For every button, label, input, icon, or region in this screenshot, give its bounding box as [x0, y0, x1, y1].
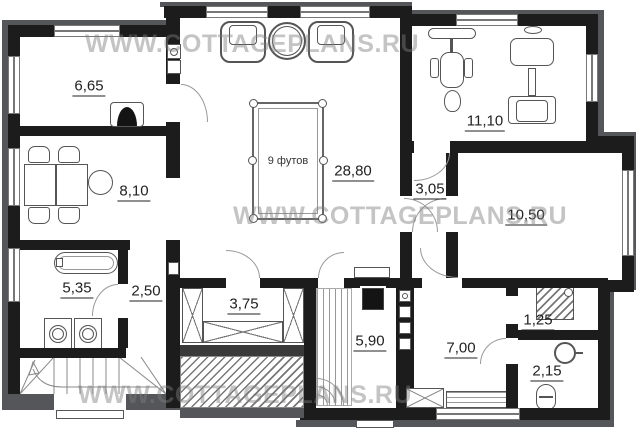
exercise-bike-stem [450, 39, 453, 52]
window [436, 408, 520, 420]
room-label-shower: 1,25 [521, 312, 554, 329]
exercise-bike-seat [440, 52, 464, 88]
exterior-wall [164, 6, 412, 18]
interior-wall [118, 240, 128, 284]
window [8, 148, 20, 206]
toilet-tank-line [539, 396, 553, 398]
room-label-billiard-hall: 28,80 [332, 163, 374, 180]
room-label-bathroom: 5,35 [60, 280, 93, 297]
window [206, 6, 268, 18]
window [456, 14, 518, 26]
interior-wall [180, 345, 304, 356]
door-arc [226, 250, 260, 278]
room-label-hallway: 2,50 [129, 283, 162, 300]
billiard-pocket [248, 156, 257, 165]
washing-machine-door [79, 325, 97, 343]
watermark: WWW.COTTAGEPLANS.RU [233, 202, 567, 231]
door-arc [181, 84, 208, 122]
shower-drain [564, 288, 573, 297]
window [622, 170, 634, 256]
chair [88, 170, 113, 195]
watermark: WWW.COTTAGEPLANS.RU [78, 381, 412, 410]
sauna-stove [360, 286, 386, 312]
interior-wall [8, 348, 126, 358]
electric-panel [168, 262, 179, 275]
weight-machine-cap [524, 26, 542, 34]
door-arc [420, 248, 458, 278]
window [8, 56, 20, 114]
door-arc [318, 252, 344, 278]
washing-machine-door [49, 325, 67, 343]
interior-wall [400, 232, 412, 278]
door-arc [92, 284, 118, 316]
chair [28, 207, 50, 224]
billiard-pocket [319, 156, 328, 165]
billiard-table-size-label: 9 футов [268, 155, 308, 167]
chair [58, 146, 80, 163]
room-label-gym: 11,10 [465, 113, 505, 130]
weight-machine-column [528, 68, 536, 96]
weight-machine-pad [510, 38, 554, 66]
interior-wall [118, 318, 128, 348]
chimney-footing [356, 420, 394, 428]
window [300, 6, 370, 18]
exterior-wall [598, 280, 610, 420]
chair [58, 207, 80, 224]
sauna-vent [354, 267, 390, 278]
room-label-dining: 8,10 [117, 183, 150, 200]
sink [554, 342, 576, 364]
interior-wall [506, 324, 518, 338]
billiard-pocket [249, 99, 258, 108]
flue-opening [399, 322, 411, 334]
slat-bench [446, 391, 512, 408]
flue-opening [399, 306, 411, 318]
floor-plan: 9 футов [0, 0, 638, 431]
interior-wall [506, 288, 518, 296]
flue-opening [399, 338, 411, 350]
weight-machine-seat [516, 100, 548, 122]
interior-wall [400, 153, 412, 196]
door-arc [414, 153, 450, 181]
room-label-corridor: 3,05 [413, 181, 446, 198]
exercise-bike-wheel [444, 90, 461, 112]
room-label-sauna: 5,90 [353, 333, 386, 350]
bathtub [54, 252, 118, 274]
window [586, 54, 598, 102]
interior-wall [180, 278, 226, 288]
room-label-rest-room: 7,00 [444, 340, 477, 357]
sink-tap [575, 352, 583, 354]
wardrobe-shelf [203, 321, 283, 343]
outer-wall [296, 420, 614, 427]
kitchen-stove [167, 60, 181, 74]
billiard-pocket [318, 99, 327, 108]
interior-wall [18, 126, 166, 136]
exercise-bike-pedal [464, 58, 473, 78]
porch-step [56, 410, 124, 419]
exercise-bike-pedal [430, 58, 439, 78]
door-arc [480, 338, 506, 364]
exercise-bike-handlebar [428, 28, 476, 39]
interior-wall [166, 122, 180, 178]
dining-table [24, 164, 88, 206]
window [8, 248, 20, 302]
interior-wall [506, 364, 518, 408]
outer-wall [598, 10, 604, 140]
flue-circle [402, 293, 408, 299]
interior-wall [518, 330, 598, 340]
room-label-living: 6,65 [72, 78, 105, 95]
interior-wall [414, 278, 422, 288]
bathtub-faucet [56, 258, 63, 267]
chair [28, 146, 50, 163]
door-gap [414, 141, 450, 153]
room-label-wc: 2,15 [530, 363, 563, 380]
watermark: WWW.COTTAGEPLANS.RU [85, 30, 419, 59]
wardrobe-section [182, 288, 203, 343]
wardrobe-section [283, 288, 304, 343]
interior-wall [260, 278, 318, 288]
interior-wall [8, 240, 130, 250]
interior-wall [462, 278, 608, 288]
room-label-wardrobe: 3,75 [227, 296, 260, 313]
